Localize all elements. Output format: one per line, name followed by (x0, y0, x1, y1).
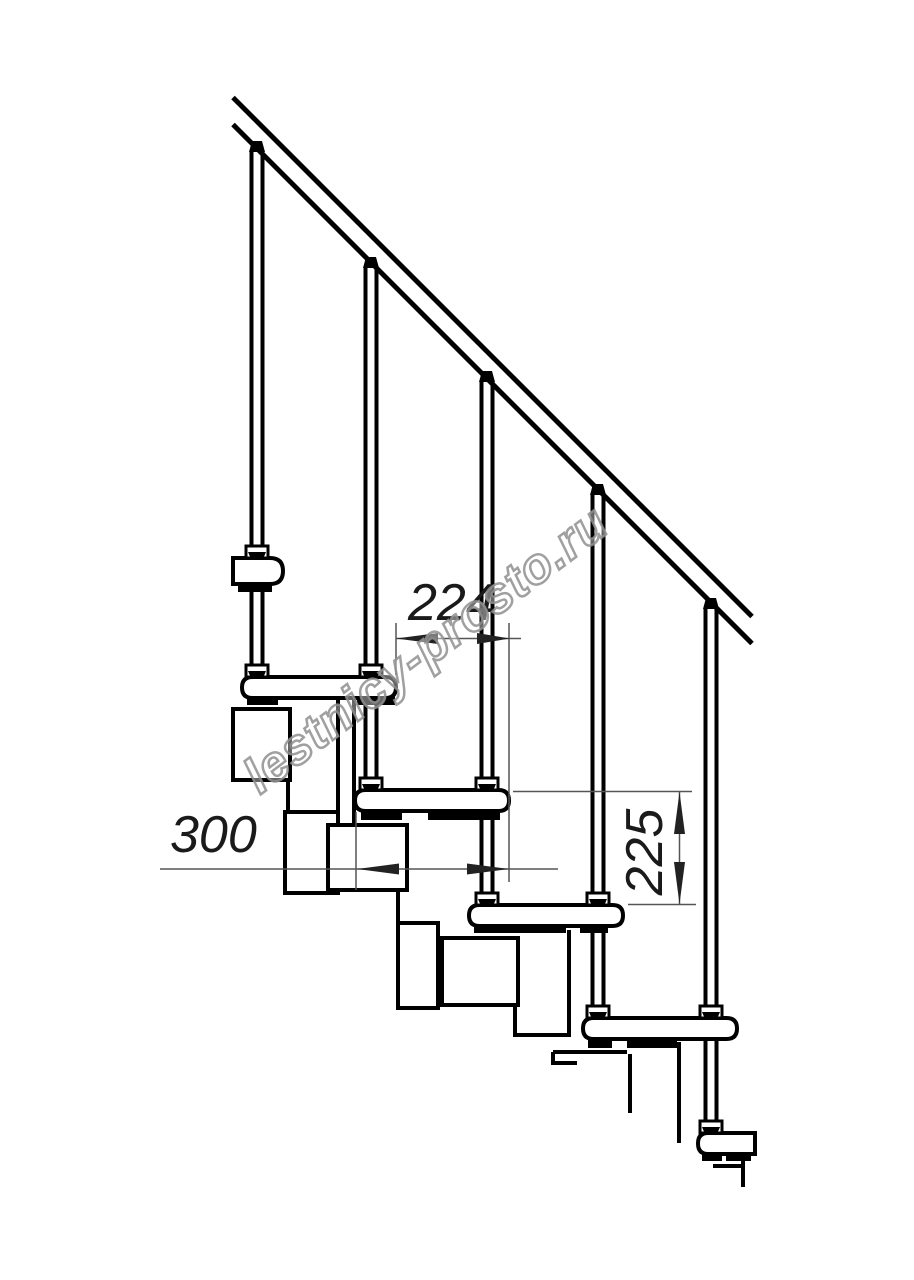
collar (587, 893, 609, 906)
under-plate (588, 1040, 612, 1048)
support-module-box-4 (398, 923, 438, 1008)
under-plate (247, 697, 278, 705)
under-plate (474, 925, 566, 933)
staircase-technical-drawing: 224 300 225 lestnicy-prosto.ru (0, 0, 914, 1280)
collar (246, 546, 268, 559)
under-plate (238, 584, 272, 592)
collar (360, 778, 382, 791)
tread-1-cut (233, 558, 283, 584)
under-plate (702, 1154, 722, 1161)
under-plate (580, 925, 608, 933)
under-plate (361, 812, 402, 820)
tread-5 (583, 1018, 737, 1039)
tread-4 (469, 905, 623, 926)
support-module-box-3 (328, 825, 407, 890)
under-plate (627, 1040, 677, 1048)
collar (587, 1006, 609, 1019)
dimension-225-label: 225 (616, 808, 674, 897)
drawing-svg: 224 300 225 lestnicy-prosto.ru (0, 0, 914, 1280)
collar (246, 665, 268, 678)
under-plate (726, 1154, 751, 1161)
collar (476, 893, 498, 906)
dimension-300-label: 300 (170, 806, 257, 864)
tread-3 (355, 790, 509, 811)
support-module-box-5 (442, 938, 518, 1005)
collar (700, 1006, 722, 1019)
tread-6-cut (698, 1133, 755, 1154)
collar (700, 1121, 722, 1134)
collar (476, 778, 498, 791)
under-plate (428, 812, 500, 820)
